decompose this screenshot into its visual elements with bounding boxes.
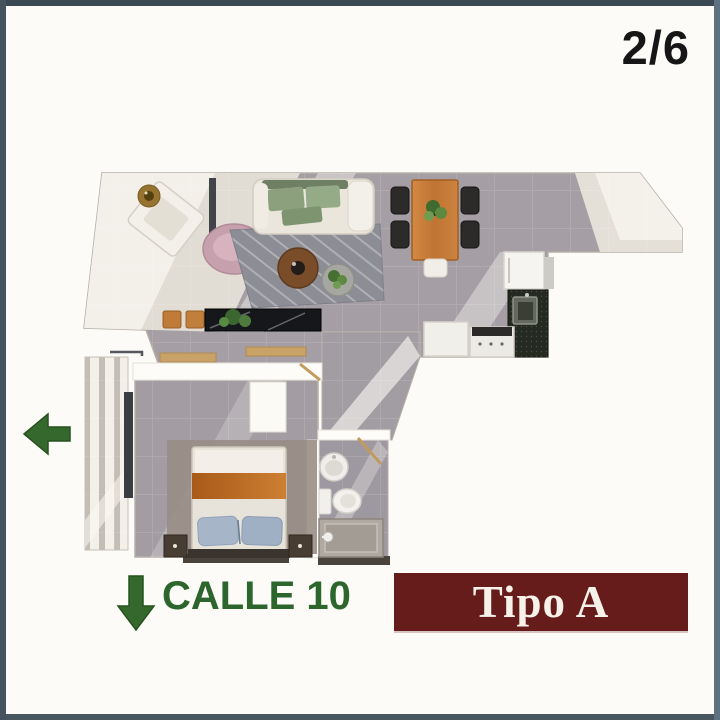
unit-type-banner: Tipo A [394, 573, 688, 631]
tv-partition-panel [209, 178, 216, 236]
coffee-table-concrete [322, 264, 354, 296]
street-label: CALLE 10 [162, 576, 351, 616]
kitchen-cabinet [424, 322, 468, 356]
stove [470, 327, 514, 357]
side-arrow-left [14, 400, 94, 480]
fridge [504, 252, 554, 289]
frame-border-bottom [0, 714, 720, 720]
screenshot-root: 2/6 CALLE 10 Tipo A [0, 0, 720, 720]
window-frame [124, 392, 133, 498]
page-indicator: 2/6 [622, 20, 690, 75]
frame-border-right [714, 0, 720, 720]
bathroom-top-wall [318, 430, 390, 440]
arrow-left-icon [24, 414, 70, 454]
dining-table-with-plant [412, 180, 458, 260]
street-direction: CALLE 10 [116, 572, 351, 634]
bedroom-top-wall [133, 363, 322, 380]
shower [319, 519, 383, 557]
round-washbasin [320, 453, 348, 481]
coffee-table-wood [278, 248, 318, 288]
arrow-down-icon [118, 576, 154, 630]
frame-border-top [0, 0, 720, 6]
double-bed [188, 447, 290, 558]
toilet [319, 489, 361, 514]
sofa [253, 179, 374, 234]
side-table [138, 185, 160, 207]
balcony-rail-line [110, 352, 142, 356]
marble-console-with-plant [205, 309, 321, 331]
street-arrow-down [116, 572, 156, 634]
unit-type-label: Tipo A [473, 576, 610, 628]
frame-border-left [0, 0, 6, 720]
